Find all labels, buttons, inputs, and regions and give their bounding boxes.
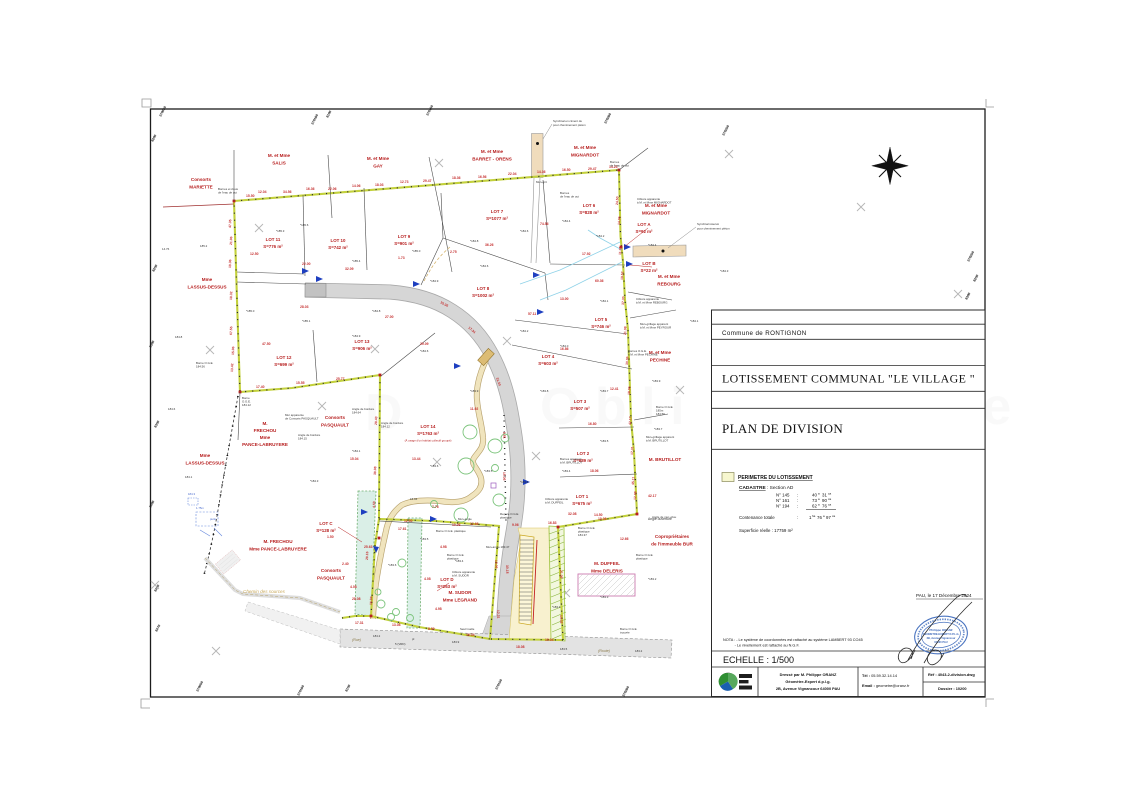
- svg-text:pour cheminement piéton: pour cheminement piéton: [553, 123, 586, 127]
- svg-text:14.06: 14.06: [617, 216, 621, 225]
- svg-text:12.73: 12.73: [400, 180, 409, 184]
- svg-text:30.18: 30.18: [505, 565, 509, 574]
- svg-text:LOT A: LOT A: [637, 222, 651, 227]
- svg-text:37.30: 37.30: [621, 296, 625, 305]
- svg-text:plastique: plastique: [447, 557, 459, 561]
- svg-text::: :: [797, 515, 798, 520]
- svg-text:21.08: 21.08: [623, 326, 627, 335]
- svg-text:Chemin des sources: Chemin des sources: [243, 589, 286, 594]
- svg-text:12.08: 12.08: [633, 491, 637, 500]
- svg-text:GAY: GAY: [373, 164, 383, 169]
- svg-text:74.56: 74.56: [540, 222, 549, 226]
- svg-text:plastique: plastique: [500, 516, 512, 520]
- svg-text:PECHINE: PECHINE: [650, 358, 670, 363]
- svg-text:30.08: 30.08: [373, 466, 377, 475]
- svg-text:ca: ca: [828, 503, 832, 507]
- svg-text:S=742 m²: S=742 m²: [328, 245, 348, 250]
- svg-text:M. SUDOR: M. SUDOR: [449, 590, 473, 595]
- svg-text:Superficie réelle : 17759 m²: Superficie réelle : 17759 m²: [739, 528, 793, 533]
- svg-text:*184.2: *184.2: [596, 234, 605, 238]
- svg-text:LOT 5: LOT 5: [595, 317, 608, 322]
- svg-text:2B, Avenue Vignancour: 2B, Avenue Vignancour: [927, 636, 956, 640]
- svg-text:Géomètre-Expert d.p.l.g.: Géomètre-Expert d.p.l.g.: [785, 679, 830, 684]
- svg-text:LOT D: LOT D: [440, 577, 453, 582]
- svg-text:19.52: 19.52: [620, 271, 624, 280]
- svg-text:17.92: 17.92: [582, 252, 591, 256]
- svg-text:Mme: Mme: [260, 435, 271, 440]
- svg-text:ca: ca: [828, 497, 832, 501]
- svg-text:*185.6: *185.6: [300, 223, 309, 227]
- svg-text:28.43: 28.43: [374, 416, 378, 425]
- svg-text:14.06: 14.06: [352, 184, 361, 188]
- svg-text:185.2: 185.2: [200, 244, 208, 248]
- svg-text:*183.2: *183.2: [648, 577, 657, 581]
- svg-text:12.50: 12.50: [404, 519, 413, 523]
- svg-text:12.66: 12.66: [470, 522, 479, 526]
- svg-text:183.2: 183.2: [635, 649, 643, 653]
- svg-text:17.31: 17.31: [355, 621, 364, 625]
- svg-text:4.59: 4.59: [372, 501, 376, 508]
- svg-text:13.42: 13.42: [230, 363, 234, 372]
- svg-text:20.16: 20.16: [365, 551, 369, 560]
- svg-text:12.31: 12.31: [496, 610, 500, 619]
- svg-text:de Consorts PASQUAULT: de Consorts PASQUAULT: [285, 417, 319, 421]
- svg-text:S=603 m²: S=603 m²: [538, 361, 558, 366]
- svg-text:ca: ca: [828, 492, 832, 496]
- svg-text:1.75m: 1.75m: [196, 506, 204, 510]
- svg-text:42.17: 42.17: [648, 494, 657, 498]
- svg-text:S=507 m²: S=507 m²: [570, 406, 590, 411]
- svg-text:Tél : 05.59.32.14.14: Tél : 05.59.32.14.14: [862, 673, 898, 678]
- svg-text:Borne O.G.E. plastique: Borne O.G.E. plastique: [436, 529, 466, 533]
- svg-text:LOT 9: LOT 9: [398, 234, 411, 239]
- svg-text:15.50: 15.50: [246, 194, 255, 198]
- svg-text:*184.6: *184.6: [420, 349, 429, 353]
- svg-text:32.08: 32.08: [568, 512, 577, 516]
- svg-text:M. et Mme: M. et Mme: [268, 153, 291, 158]
- svg-text:76: 76: [817, 515, 822, 520]
- svg-text:N° 161: N° 161: [776, 498, 790, 503]
- svg-text:S=22 m²: S=22 m²: [641, 268, 659, 273]
- svg-text:19.36: 19.36: [228, 259, 232, 268]
- svg-text:18.06: 18.06: [494, 560, 498, 569]
- svg-text::: :: [797, 498, 798, 503]
- svg-text:S=776 m²: S=776 m²: [263, 244, 283, 249]
- svg-text:184.6: 184.6: [168, 407, 176, 411]
- svg-text:184.12: 184.12: [381, 425, 390, 429]
- svg-text:11.92: 11.92: [470, 407, 478, 411]
- svg-text:16.04: 16.04: [466, 633, 475, 637]
- svg-text:15.04: 15.04: [350, 457, 359, 461]
- svg-text:LOT 2: LOT 2: [577, 451, 590, 456]
- svg-text:S=828 m²: S=828 m²: [579, 210, 599, 215]
- svg-text:M.: M.: [262, 421, 267, 426]
- svg-text:16.04: 16.04: [369, 596, 373, 605]
- svg-text:184.56: 184.56: [196, 365, 205, 369]
- svg-text:BARRET - ORENS: BARRET - ORENS: [472, 157, 512, 162]
- svg-text:*184.8: *184.8: [372, 309, 381, 313]
- svg-text:S=675 m²: S=675 m²: [572, 501, 592, 506]
- svg-text:28.08: 28.08: [352, 597, 361, 601]
- svg-text:4.08: 4.08: [350, 585, 357, 589]
- svg-text:21.06: 21.06: [559, 570, 563, 579]
- svg-text:LOT 3: LOT 3: [574, 399, 587, 404]
- svg-text:14.50: 14.50: [594, 513, 603, 517]
- svg-text:*184.6: *184.6: [480, 264, 489, 268]
- svg-text:de l'eau de out: de l'eau de out: [218, 191, 237, 195]
- svg-text:*183.9: *183.9: [652, 379, 661, 383]
- svg-text:12.04: 12.04: [258, 190, 267, 194]
- svg-text:ha: ha: [812, 514, 816, 518]
- svg-text:Email : geometre@oranz.fr: Email : geometre@oranz.fr: [862, 683, 910, 688]
- svg-text:13.44: 13.44: [412, 457, 421, 461]
- svg-text:Angle ouverture: Angle ouverture: [648, 517, 672, 521]
- svg-text:LOT 7: LOT 7: [491, 209, 504, 214]
- svg-text:13.08: 13.08: [392, 623, 401, 627]
- svg-text:N° 194: N° 194: [776, 504, 790, 509]
- svg-text:pour cheminement piéton: pour cheminement piéton: [697, 227, 730, 231]
- svg-text:*185.3: *185.3: [276, 229, 285, 233]
- svg-text:Mme: Mme: [202, 277, 213, 282]
- svg-text:Dressé par M. Philippe ORANZ: Dressé par M. Philippe ORANZ: [780, 672, 837, 677]
- svg-text:LOT 11: LOT 11: [266, 237, 281, 242]
- svg-text:*183.6: *183.6: [430, 464, 439, 468]
- svg-text:184.8: 184.8: [175, 335, 183, 339]
- svg-text:31: 31: [822, 493, 827, 498]
- svg-text:14.02: 14.02: [559, 615, 563, 624]
- svg-text:10.06: 10.06: [452, 523, 461, 527]
- svg-text:*184.9: *184.9: [352, 334, 361, 338]
- svg-text:S=1763 m²: S=1763 m²: [417, 431, 439, 436]
- svg-text:NOTA : - Le système de coordon: NOTA : - Le système de coordonnées est r…: [723, 638, 863, 642]
- svg-text:16.56: 16.56: [478, 175, 487, 179]
- svg-text:M. FRECHOU: M. FRECHOU: [263, 539, 293, 544]
- svg-text:N° 145: N° 145: [776, 493, 790, 498]
- svg-text:Mur+angle 183.47: Mur+angle 183.47: [486, 545, 510, 549]
- svg-text:18.06: 18.06: [627, 386, 631, 395]
- svg-text:*184.4: *184.4: [648, 243, 657, 247]
- svg-text:à M. SUDOR: à M. SUDOR: [452, 574, 469, 578]
- svg-text:22.04: 22.04: [508, 172, 517, 176]
- svg-text:15.06: 15.06: [231, 346, 235, 355]
- svg-text:2B, Avenue Vignancour 64000 PA: 2B, Avenue Vignancour 64000 PAU: [776, 686, 840, 691]
- svg-text:Mme LEGRAND: Mme LEGRAND: [443, 598, 478, 603]
- svg-text:16.36: 16.36: [306, 187, 315, 191]
- svg-text:18.03: 18.03: [375, 183, 384, 187]
- svg-text:Philippe ORANZ: Philippe ORANZ: [929, 628, 952, 632]
- svg-text:(À usage d'un habitat collecti: (À usage d'un habitat collectif groupé): [405, 439, 452, 443]
- svg-text:184.1: 184.1: [185, 475, 193, 479]
- svg-text:à M. BRUTILLOT: à M. BRUTILLOT: [560, 461, 583, 465]
- svg-text:183.5: 183.5: [560, 647, 568, 651]
- svg-text:8.50: 8.50: [428, 627, 435, 631]
- svg-text:34.56: 34.56: [283, 190, 292, 194]
- svg-text:90: 90: [822, 498, 827, 503]
- svg-text:29.47: 29.47: [423, 179, 432, 183]
- svg-text:42.17: 42.17: [628, 416, 632, 425]
- svg-text:7.76: 7.76: [432, 505, 439, 509]
- svg-text:LOTISSEMENT COMMUNAL "LE VIL: LOTISSEMENT COMMUNAL "LE VILLAGE ": [722, 372, 975, 386]
- svg-text:LOT 6: LOT 6: [583, 203, 596, 208]
- svg-text:Seuil ruelle: Seuil ruelle: [460, 627, 475, 631]
- svg-text:19.04: 19.04: [545, 638, 554, 642]
- svg-text:M. et Mme: M. et Mme: [481, 149, 504, 154]
- svg-text:MARIETTE: MARIETTE: [189, 185, 212, 190]
- svg-text:16.83: 16.83: [548, 521, 557, 525]
- svg-text:GEOMETRE-EXPERT D.P.L.G.: GEOMETRE-EXPERT D.P.L.G.: [923, 632, 960, 636]
- svg-text:Mme DELERIS: Mme DELERIS: [591, 569, 623, 574]
- svg-text:25.63: 25.63: [364, 545, 373, 549]
- svg-text:10.08: 10.08: [598, 517, 607, 521]
- svg-text:*184.3: *184.3: [310, 479, 319, 483]
- svg-text:M. et Mme: M. et Mme: [574, 145, 597, 150]
- svg-text:S=746 m²: S=746 m²: [591, 324, 611, 329]
- svg-text:LOT 8: LOT 8: [477, 286, 490, 291]
- svg-text:*183.5: *183.5: [420, 537, 429, 541]
- svg-text:S=1077 m²: S=1077 m²: [486, 216, 508, 221]
- svg-text:à M. et Mme REBOURG: à M. et Mme REBOURG: [636, 301, 668, 305]
- svg-text:de l'eau de out: de l'eau de out: [560, 195, 579, 199]
- svg-text:184.56: 184.56: [656, 412, 665, 416]
- svg-text:à M. BRUTILLOT: à M. BRUTILLOT: [646, 439, 669, 443]
- svg-text:47.35: 47.35: [228, 219, 232, 228]
- svg-text:1.73: 1.73: [398, 256, 405, 260]
- svg-text:ca: ca: [832, 514, 836, 518]
- svg-text::: :: [797, 504, 798, 509]
- svg-text:18.08: 18.08: [516, 645, 525, 649]
- svg-text:PAU, le 17 Décembre 2024: PAU, le 17 Décembre 2024: [916, 593, 972, 598]
- svg-text:LOT B: LOT B: [642, 261, 655, 266]
- svg-text:97: 97: [826, 515, 831, 520]
- svg-text:S=699 m²: S=699 m²: [274, 362, 294, 367]
- svg-text:183.9: 183.9: [452, 640, 460, 644]
- svg-text:de l'eau de out: de l'eau de out: [610, 164, 629, 168]
- svg-text:9.81: 9.81: [502, 432, 506, 439]
- svg-text:*183.5: *183.5: [484, 469, 493, 473]
- svg-text:9.06: 9.06: [512, 523, 519, 527]
- svg-text:PERIMETRE DU LOTISSEMENT: PERIMETRE DU LOTISSEMENT: [738, 475, 813, 481]
- svg-text:S=128 m²: S=128 m²: [316, 528, 336, 533]
- svg-text:28.03: 28.03: [300, 305, 309, 309]
- svg-text:*184.1: *184.1: [690, 319, 699, 323]
- svg-text:CADASTRE : Section AD: CADASTRE : Section AD: [739, 485, 794, 491]
- svg-text:*184.8: *184.8: [470, 239, 479, 243]
- svg-text:Contenance totale: Contenance totale: [739, 515, 775, 520]
- svg-text:18.32: 18.32: [229, 291, 233, 300]
- svg-text:24.50: 24.50: [615, 196, 619, 205]
- svg-text:25.77: 25.77: [336, 377, 345, 381]
- svg-text::: :: [797, 493, 798, 498]
- svg-text:22.00: 22.00: [302, 262, 311, 266]
- svg-text:M. DUFFEIL: M. DUFFEIL: [594, 561, 620, 566]
- svg-text:*183.7: *183.7: [654, 427, 663, 431]
- svg-text:*183.7: *183.7: [600, 389, 609, 393]
- svg-text:*184.1: *184.1: [352, 449, 361, 453]
- svg-text:à M. et Mme MIGNARDOT: à M. et Mme MIGNARDOT: [637, 201, 672, 205]
- svg-text:M. et Mme: M. et Mme: [658, 274, 681, 279]
- svg-text:ECHELLE : 1/500: ECHELLE : 1/500: [723, 655, 794, 665]
- svg-text:2.40: 2.40: [342, 562, 349, 566]
- svg-text:73: 73: [812, 498, 817, 503]
- svg-text:13.00: 13.00: [560, 297, 569, 301]
- svg-text:16.80: 16.80: [588, 422, 597, 426]
- svg-text:15.04: 15.04: [410, 497, 418, 501]
- svg-text:LOT 1: LOT 1: [576, 494, 589, 499]
- svg-text:15.06: 15.06: [502, 472, 506, 481]
- svg-text:*183.4: *183.4: [562, 469, 571, 473]
- svg-text:29.47: 29.47: [588, 167, 597, 171]
- svg-text:à M. et Mme PEYROUR: à M. et Mme PEYROUR: [640, 326, 671, 330]
- svg-text:2.75: 2.75: [450, 250, 457, 254]
- svg-text:*184.4: *184.4: [562, 219, 571, 223]
- svg-text:Mme PANCE-LABRUYERE: Mme PANCE-LABRUYERE: [249, 547, 307, 552]
- svg-text:45.11: 45.11: [631, 476, 635, 485]
- svg-text:5 (VRD): 5 (VRD): [395, 642, 405, 646]
- svg-text:*185.0: *185.0: [412, 249, 421, 253]
- svg-text:à M. et Mme PECHINE: à M. et Mme PECHINE: [628, 353, 658, 357]
- svg-text:*183.5: *183.5: [600, 439, 609, 443]
- svg-text:*184.3: *184.3: [720, 269, 729, 273]
- svg-text:36.26: 36.26: [485, 243, 494, 247]
- svg-text:MIGNARDOT: MIGNARDOT: [642, 211, 671, 216]
- svg-text:(Rue): (Rue): [352, 638, 361, 642]
- svg-text:S=263 m²: S=263 m²: [437, 584, 457, 589]
- svg-text:*184.9: *184.9: [430, 279, 439, 283]
- svg-text:PLAN DE DIVISION: PLAN DE DIVISION: [722, 421, 843, 436]
- svg-text:trouvée: trouvée: [620, 631, 630, 635]
- svg-text:S=1002 m²: S=1002 m²: [472, 293, 494, 298]
- svg-text:184.64: 184.64: [352, 411, 361, 415]
- svg-text:21.06: 21.06: [229, 236, 233, 245]
- svg-text:*185.0: *185.0: [246, 309, 255, 313]
- svg-text:Consorts: Consorts: [325, 415, 346, 420]
- svg-text:Mur+angle: Mur+angle: [458, 517, 472, 521]
- svg-text:REBOURG: REBOURG: [657, 282, 681, 287]
- svg-text:LOT 10: LOT 10: [331, 238, 346, 243]
- svg-text:pl: pl: [412, 637, 415, 641]
- svg-text:*184.2: *184.2: [520, 329, 529, 333]
- svg-text:Commune de RONTIGNON: Commune de RONTIGNON: [722, 330, 807, 337]
- svg-text:Synclinal réservé: Synclinal réservé: [697, 222, 719, 226]
- svg-text:S=906 m²: S=906 m²: [352, 346, 372, 351]
- svg-text:SALIS: SALIS: [272, 161, 286, 166]
- svg-text:30.06: 30.06: [625, 356, 629, 365]
- svg-text:12.41: 12.41: [610, 387, 619, 391]
- svg-text:*183.6: *183.6: [388, 563, 397, 567]
- svg-text:S=901 m²: S=901 m²: [394, 241, 414, 246]
- svg-text:M. et Mme: M. et Mme: [367, 156, 390, 161]
- svg-text:D: D: [365, 384, 403, 442]
- svg-text:*185.4: *185.4: [352, 259, 361, 263]
- svg-text:Mme: Mme: [200, 453, 211, 458]
- svg-text:32.09: 32.09: [345, 267, 354, 271]
- svg-text:184.2: 184.2: [373, 634, 381, 638]
- svg-text:PASQUAULT: PASQUAULT: [321, 423, 349, 428]
- svg-text:57.11: 57.11: [528, 312, 536, 316]
- svg-text:plastique: plastique: [636, 557, 648, 561]
- svg-text:*184.0: *184.0: [560, 344, 569, 348]
- svg-text:40: 40: [812, 493, 817, 498]
- svg-text:PANCE-LABRUYERE: PANCE-LABRUYERE: [242, 442, 288, 447]
- svg-text:12.66: 12.66: [620, 537, 629, 541]
- svg-text:*183.9: *183.9: [470, 389, 479, 393]
- svg-text:S=92 m²: S=92 m²: [636, 229, 654, 234]
- svg-text:LASSUS-DESSUS: LASSUS-DESSUS: [187, 285, 226, 290]
- svg-text:17.40: 17.40: [256, 385, 265, 389]
- svg-text:de l'immeuble BUR: de l'immeuble BUR: [651, 542, 693, 547]
- svg-text:4.98: 4.98: [435, 607, 442, 611]
- svg-text:184.12: 184.12: [242, 403, 251, 407]
- svg-text:18.06: 18.06: [590, 469, 599, 473]
- svg-text:11.36: 11.36: [618, 246, 622, 255]
- svg-text:LASSUS-DESSUS: LASSUS-DESSUS: [185, 461, 224, 466]
- svg-text:Copropriétaires: Copropriétaires: [655, 534, 690, 539]
- svg-text:4.98: 4.98: [440, 545, 447, 549]
- svg-text:22.06: 22.06: [328, 187, 337, 191]
- svg-text:à M. DUFFEIL: à M. DUFFEIL: [545, 501, 564, 505]
- svg-text:LOT 4: LOT 4: [542, 354, 555, 359]
- svg-text:*184.1: *184.1: [600, 299, 609, 303]
- svg-text:67.55: 67.55: [229, 326, 233, 335]
- svg-text:Consorts: Consorts: [321, 568, 342, 573]
- svg-text:*183.3: *183.3: [552, 605, 561, 609]
- svg-text:FRECHOU: FRECHOU: [254, 428, 277, 433]
- svg-text:Dossier : 10200: Dossier : 10200: [938, 686, 967, 691]
- svg-text:LOT C: LOT C: [319, 521, 333, 526]
- svg-text:LOT 13: LOT 13: [355, 339, 370, 344]
- svg-text:(Route): (Route): [598, 649, 610, 653]
- svg-text:60.36: 60.36: [595, 279, 604, 283]
- svg-text:LOT 14: LOT 14: [421, 424, 436, 429]
- svg-text:14.76: 14.76: [162, 247, 170, 251]
- svg-text:*183.8: *183.8: [540, 389, 549, 393]
- svg-text:17.31: 17.31: [630, 446, 634, 455]
- svg-text:27.00: 27.00: [385, 315, 394, 319]
- svg-text:184.15: 184.15: [298, 437, 307, 441]
- svg-text:15.55: 15.55: [296, 381, 305, 385]
- svg-text:184.37: 184.37: [578, 533, 587, 537]
- svg-text:62: 62: [812, 504, 817, 509]
- svg-text:*185.1: *185.1: [302, 319, 311, 323]
- svg-text:Réf : 4043-2-division.dwg: Réf : 4043-2-division.dwg: [928, 672, 975, 677]
- svg-text:Consorts: Consorts: [191, 177, 212, 182]
- svg-text:4.08: 4.08: [424, 577, 431, 581]
- svg-text:- Le nivellement est rattaché: - Le nivellement est rattaché au N.G.F.: [723, 644, 799, 648]
- svg-text:184.3: 184.3: [188, 492, 195, 496]
- svg-text:PASQUAULT: PASQUAULT: [317, 576, 345, 581]
- svg-text:*183.4: *183.4: [520, 480, 529, 484]
- svg-text:1.50: 1.50: [327, 535, 334, 539]
- svg-text:17.61: 17.61: [398, 527, 407, 531]
- svg-text:*183.3: *183.3: [600, 595, 609, 599]
- svg-text:12.50: 12.50: [250, 252, 259, 256]
- svg-text:MIGNARDOT: MIGNARDOT: [571, 153, 600, 158]
- svg-text:LOT 12: LOT 12: [277, 355, 292, 360]
- svg-text:18.36: 18.36: [452, 176, 461, 180]
- svg-text:16.50: 16.50: [562, 168, 571, 172]
- svg-text:puits: puits: [210, 517, 217, 521]
- svg-text:47.50: 47.50: [262, 342, 271, 346]
- svg-text:29.09: 29.09: [420, 342, 429, 346]
- svg-text:76: 76: [822, 504, 827, 509]
- svg-text:Mur+gril.: Mur+gril.: [536, 180, 548, 184]
- svg-text:14.36: 14.36: [537, 170, 546, 174]
- svg-text:*184.6: *184.6: [520, 229, 529, 233]
- svg-text:M. BRUTILLOT: M. BRUTILLOT: [649, 457, 682, 462]
